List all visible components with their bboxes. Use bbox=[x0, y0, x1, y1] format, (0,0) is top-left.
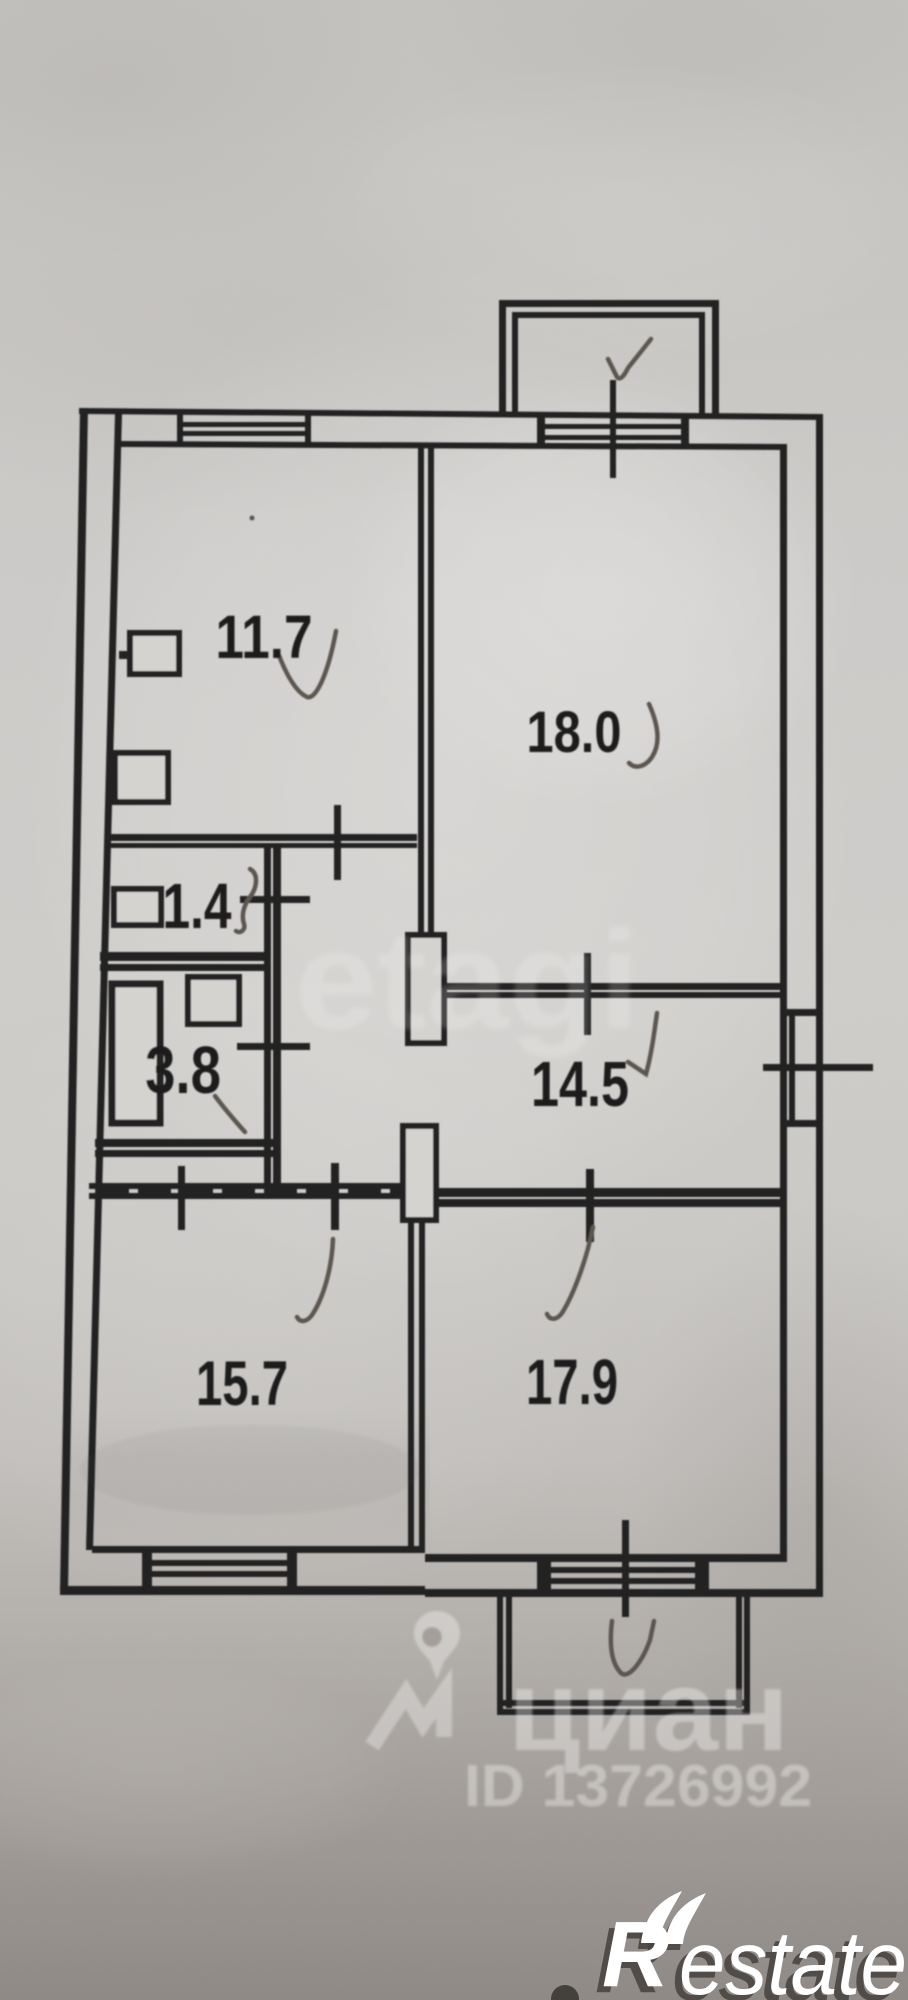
svg-text:15.7: 15.7 bbox=[196, 1349, 288, 1419]
svg-text:18.0: 18.0 bbox=[527, 700, 622, 765]
svg-text:3.8: 3.8 bbox=[145, 1033, 221, 1108]
svg-text:11.7: 11.7 bbox=[216, 603, 313, 671]
svg-text:14.5: 14.5 bbox=[531, 1048, 629, 1120]
svg-text:17.9: 17.9 bbox=[526, 1346, 618, 1418]
svg-text:etagi: etagi bbox=[295, 901, 640, 1058]
svg-text:1.4: 1.4 bbox=[163, 870, 232, 942]
svg-text:ID 13726992: ID 13726992 bbox=[464, 1753, 812, 1819]
svg-text:estate: estate bbox=[679, 1913, 907, 2000]
